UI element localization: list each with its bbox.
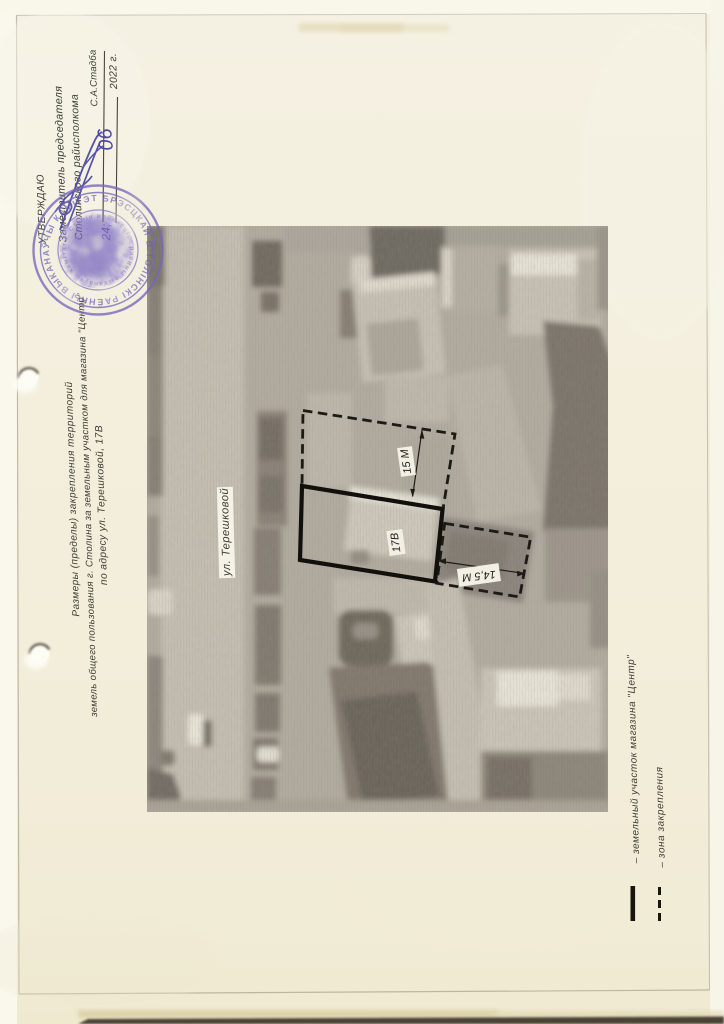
svg-text:06: 06 xyxy=(94,127,118,152)
